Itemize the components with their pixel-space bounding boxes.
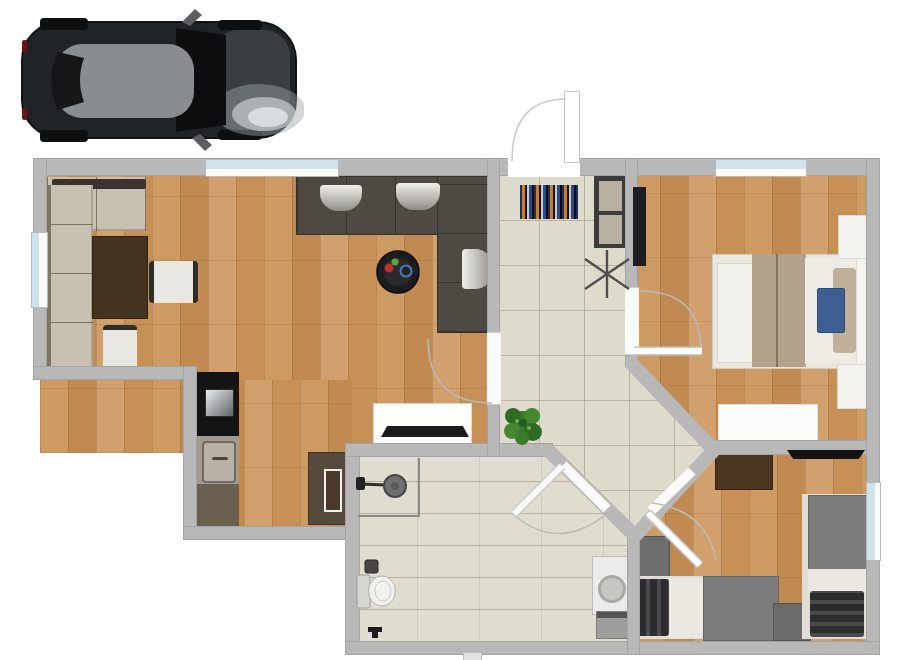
sink-basin — [202, 441, 236, 483]
wall-kitchen-bottom — [183, 526, 358, 540]
shoe-cabinet-door — [599, 181, 622, 211]
shoe-cabinet-door — [599, 215, 622, 244]
wall-step — [33, 366, 197, 380]
blue-pillow — [817, 288, 845, 333]
wall-bathroom-left — [345, 443, 360, 655]
floor-plan-canvas — [0, 0, 905, 660]
dark-pillow — [635, 579, 669, 636]
window-living-top[interactable] — [205, 159, 339, 177]
entrance-door-leaf[interactable] — [564, 91, 580, 163]
serving-tray — [324, 469, 342, 512]
window-living-left[interactable] — [31, 232, 48, 308]
living-room-doorway[interactable] — [487, 332, 501, 405]
cooktop-glass — [205, 389, 234, 417]
wall-tv-bedroom-second[interactable] — [787, 450, 865, 459]
kitchen-worktop[interactable] — [197, 484, 239, 526]
wall-bedroom2-left — [627, 528, 640, 655]
beige-sofa-left[interactable] — [47, 185, 93, 372]
gray-blanket — [808, 495, 868, 571]
wall-hall-left — [487, 158, 500, 457]
wall-living-bottom — [345, 443, 553, 457]
desk-chair[interactable] — [149, 261, 198, 303]
dark-pillow — [810, 591, 864, 637]
desk-bedroom-second[interactable] — [715, 451, 773, 490]
bed-sheet — [669, 578, 705, 638]
wall-kitchen-left — [183, 366, 197, 540]
car-body — [22, 9, 304, 151]
double-bed-blanket — [752, 254, 806, 367]
writing-desk[interactable] — [92, 236, 148, 319]
bedroom-main-doorway[interactable] — [625, 287, 639, 355]
sink-faucet — [212, 457, 228, 460]
window-bedroom-main-top[interactable] — [715, 159, 807, 177]
entrance-door-arc — [512, 99, 566, 161]
bed-sheet — [808, 569, 866, 591]
window-bedroom-second-right[interactable] — [866, 482, 881, 561]
car-top-view[interactable] — [16, 6, 304, 154]
wall-bottom — [345, 641, 880, 655]
double-bed-mattress — [717, 263, 755, 363]
tv-sideboard[interactable] — [373, 403, 472, 446]
tv-flatscreen[interactable] — [381, 426, 469, 437]
wall-tv-bedroom-main[interactable] — [633, 187, 646, 266]
wall-right — [866, 158, 880, 655]
selection-handle[interactable] — [463, 652, 482, 660]
washing-machine-drum — [598, 575, 626, 603]
gray-blanket — [703, 576, 779, 641]
striped-doormat[interactable] — [520, 185, 578, 219]
laundry-box[interactable] — [596, 611, 628, 639]
